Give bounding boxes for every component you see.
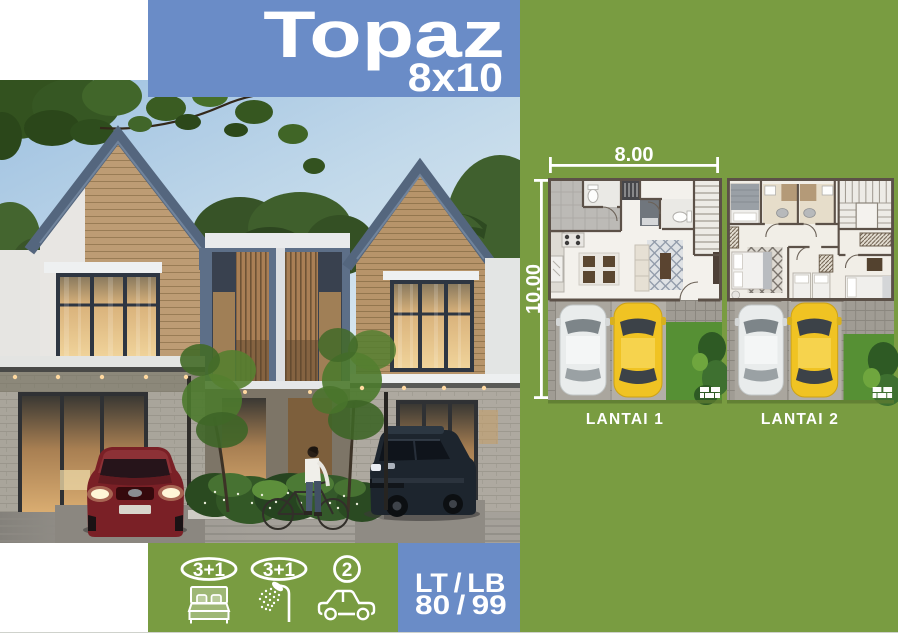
svg-text:LANTAI 2: LANTAI 2 bbox=[761, 411, 839, 428]
svg-text:3+1: 3+1 bbox=[193, 560, 226, 581]
svg-text:8.00: 8.00 bbox=[615, 144, 654, 166]
svg-text:LANTAI 1: LANTAI 1 bbox=[586, 411, 664, 428]
svg-text:3+1: 3+1 bbox=[263, 560, 296, 581]
svg-text:2: 2 bbox=[342, 560, 353, 581]
